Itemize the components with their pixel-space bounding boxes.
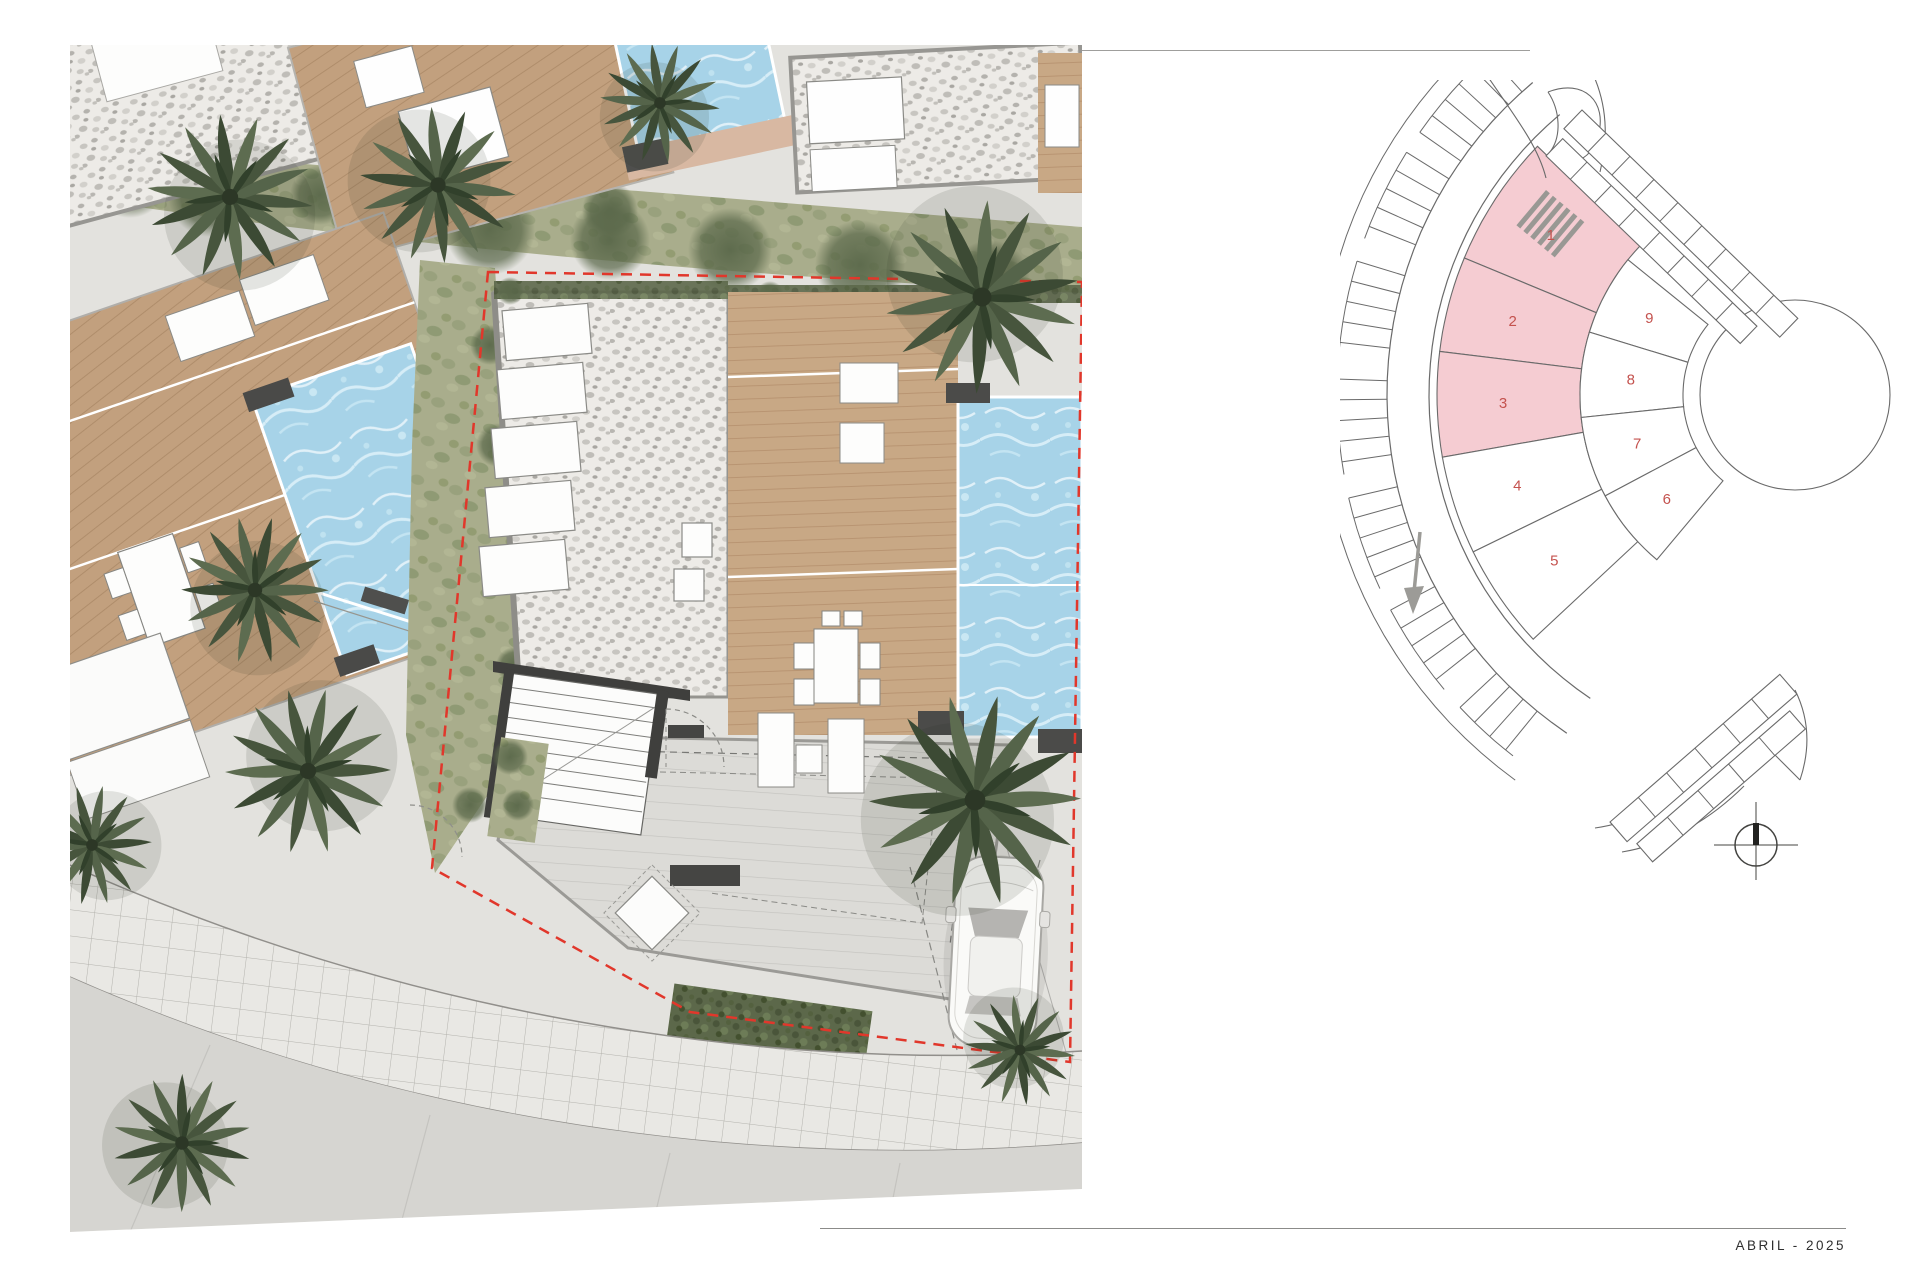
site-plan-drawing: [70, 45, 1082, 1232]
plan-sheet: 123459876 SUPERFICIE DE PARCELA: 251 m² …: [0, 0, 1920, 1280]
location-key-map: 123459876: [1340, 80, 1920, 880]
footer-rule: [820, 1228, 1846, 1229]
plot-number: 1: [1547, 227, 1555, 244]
date-stamp: ABRIL - 2025: [1660, 1238, 1846, 1253]
plot-number: 4: [1513, 477, 1521, 494]
plot-area-summary: SUPERFICIE DE PARCELA: 251 m² SUPERFICIE…: [862, 1233, 1414, 1280]
plot-number: 2: [1508, 313, 1516, 330]
housing-strip: [1610, 674, 1818, 865]
roof-deck: [728, 292, 958, 735]
plot-number: 7: [1633, 435, 1641, 452]
plot-number: 5: [1550, 553, 1558, 570]
roof-hedge-top: [494, 281, 728, 299]
plot-number: 8: [1627, 371, 1635, 388]
north-compass-icon: [1714, 802, 1798, 880]
plot-number: 9: [1645, 310, 1653, 327]
plot-number: 3: [1499, 395, 1507, 412]
plot-number: 6: [1663, 491, 1671, 508]
